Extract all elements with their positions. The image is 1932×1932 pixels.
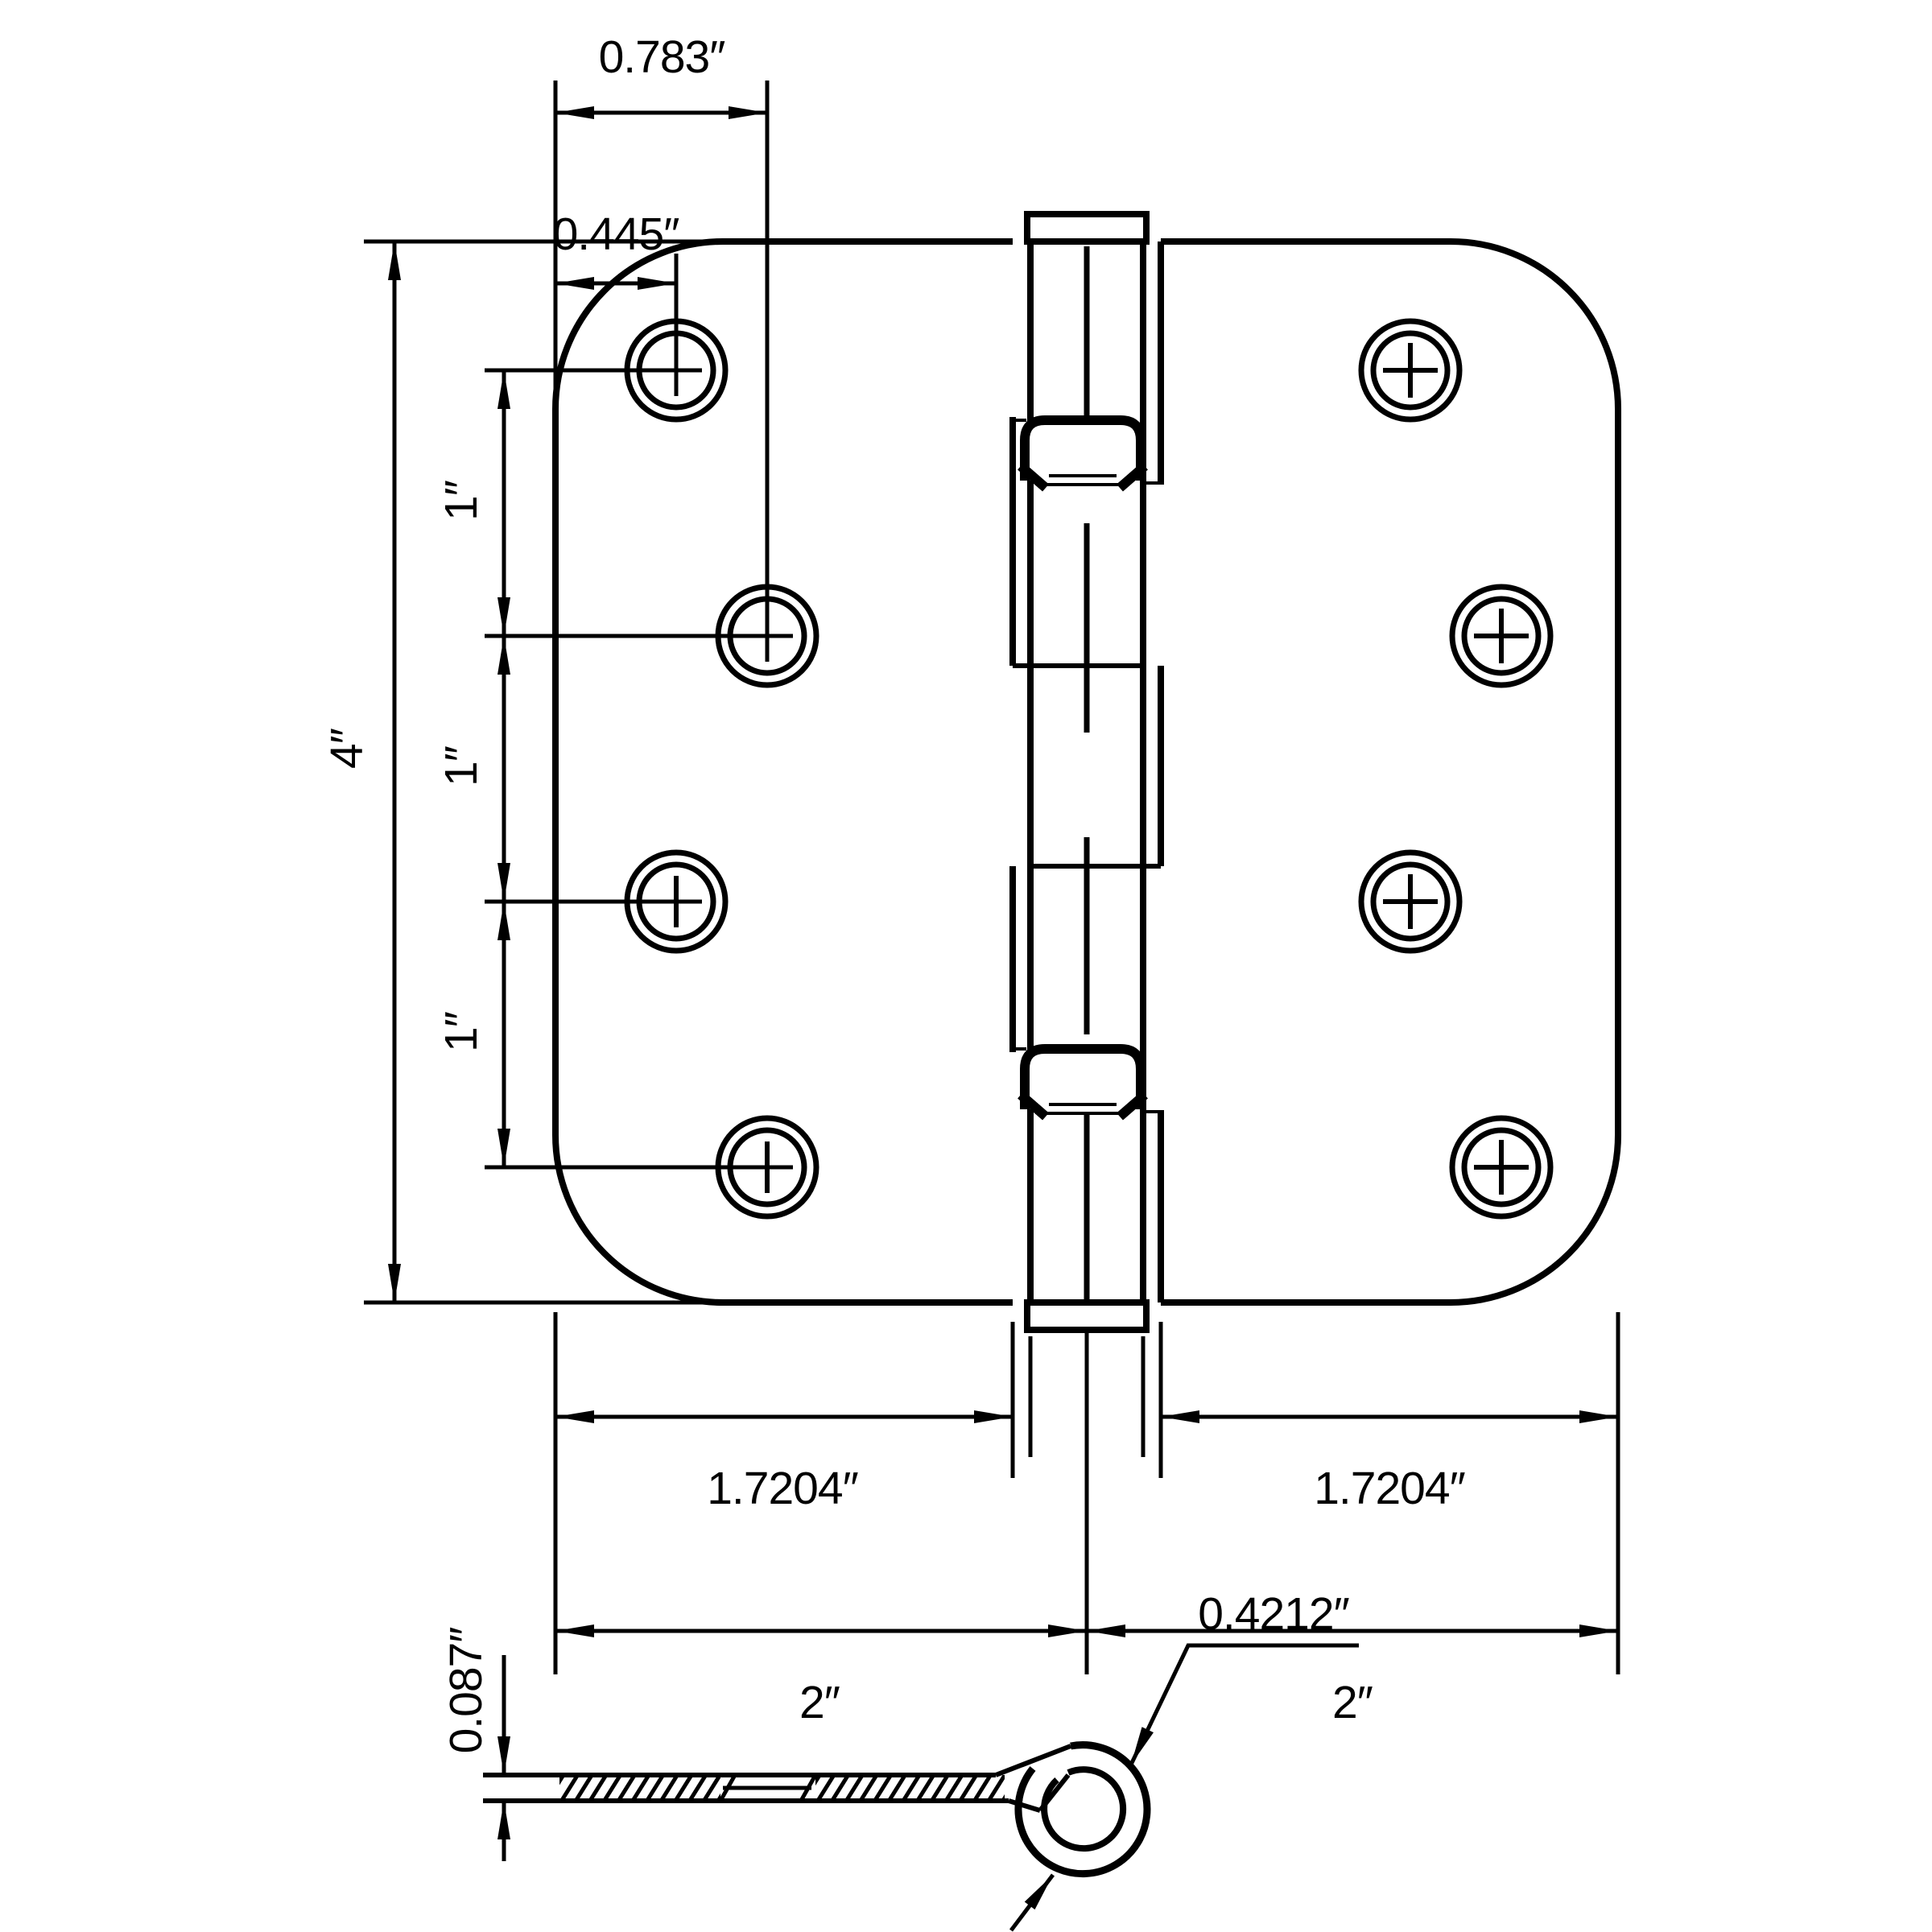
knuckle-diameter-leader <box>1131 1645 1359 1765</box>
label-leaf-thickness: 0.087″ <box>440 1627 492 1754</box>
label-hole-col2-offset: 0.783″ <box>599 31 726 83</box>
left-leaf-outline <box>555 242 1013 1302</box>
label-right-leaf-width: 1.7204″ <box>1314 1463 1465 1514</box>
countersink-slot <box>720 1775 815 1801</box>
label-left-half-width: 2″ <box>799 1677 840 1728</box>
bearing-bottom <box>1021 1049 1145 1117</box>
label-knuckle-diameter: 0.4212″ <box>1198 1588 1349 1640</box>
label-hole-col1-offset: 0.445″ <box>553 208 680 260</box>
bearing-top <box>1021 420 1145 488</box>
label-hole-pitch-top: 1″ <box>436 480 487 521</box>
label-hole-pitch-mid: 1″ <box>436 745 487 786</box>
pin-cap-bottom <box>1027 1302 1146 1330</box>
label-right-half-width: 2″ <box>1332 1677 1373 1728</box>
hinge-technical-drawing: 0.783″ 0.445″ 4″ 1″ 1″ 1″ 1.7204″ 1.7204… <box>0 0 1932 1932</box>
curl-pointer-leader <box>1011 1875 1053 1930</box>
extension-lines <box>364 80 1618 1674</box>
label-plate-height: 4″ <box>321 728 373 769</box>
pin-cap-top <box>1027 214 1146 242</box>
profile-view: 0.087″ 0.4212″ <box>440 1588 1359 1930</box>
screw-holes-left <box>627 321 816 1216</box>
screw-holes-right <box>1361 321 1550 1216</box>
label-hole-pitch-bottom: 1″ <box>436 1011 487 1052</box>
label-left-leaf-width: 1.7204″ <box>707 1463 858 1514</box>
drawing-sheet: 0.783″ 0.445″ 4″ 1″ 1″ 1″ 1.7204″ 1.7204… <box>0 0 1932 1932</box>
front-view: 0.783″ 0.445″ 4″ 1″ 1″ 1″ 1.7204″ 1.7204… <box>321 31 1618 1728</box>
